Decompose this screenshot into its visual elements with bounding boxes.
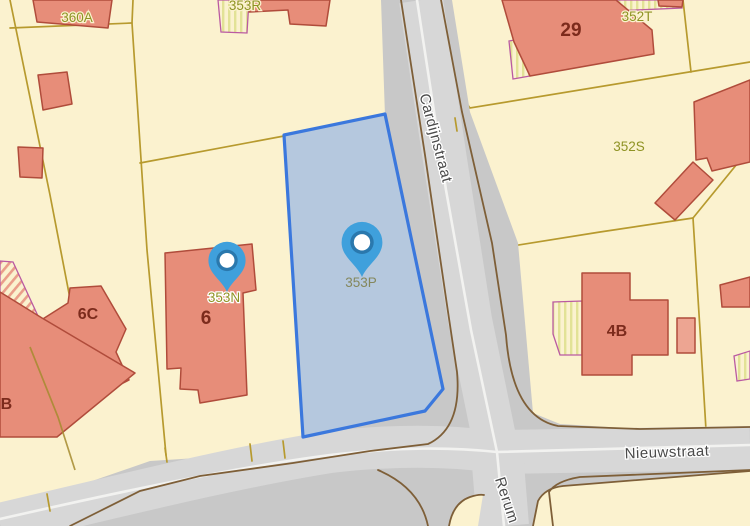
hatch-right-edge [734, 351, 750, 381]
house-number-29: 29 [560, 20, 581, 41]
map-viewport[interactable]: 360A 353R 352T 352S 353N 353P 29 6 6C 6B… [0, 0, 750, 526]
street-label-nieuwstraat: Nieuwstraat [624, 443, 710, 463]
parcel-label-352T: 352T [622, 9, 653, 24]
building-4B-annex [677, 318, 695, 353]
building-small-1 [38, 72, 72, 110]
house-number-6: 6 [201, 308, 212, 329]
parcel-label-353R: 353R [229, 0, 262, 13]
parcel-label-353P: 353P [345, 275, 377, 290]
map-canvas[interactable]: 360A 353R 352T 352S 353N 353P 29 6 6C 6B… [0, 0, 750, 526]
parcel-label-353N: 353N [208, 290, 240, 305]
parcel-label-360A: 360A [61, 10, 93, 25]
parcel-label-352S: 352S [613, 139, 645, 154]
house-number-6C: 6C [78, 306, 99, 323]
building-small-3 [658, 0, 683, 7]
house-number-4B: 4B [607, 323, 627, 340]
building-small-2 [18, 147, 43, 178]
house-number-6B: 6B [0, 396, 12, 413]
hatch-4B-annex [553, 301, 582, 355]
